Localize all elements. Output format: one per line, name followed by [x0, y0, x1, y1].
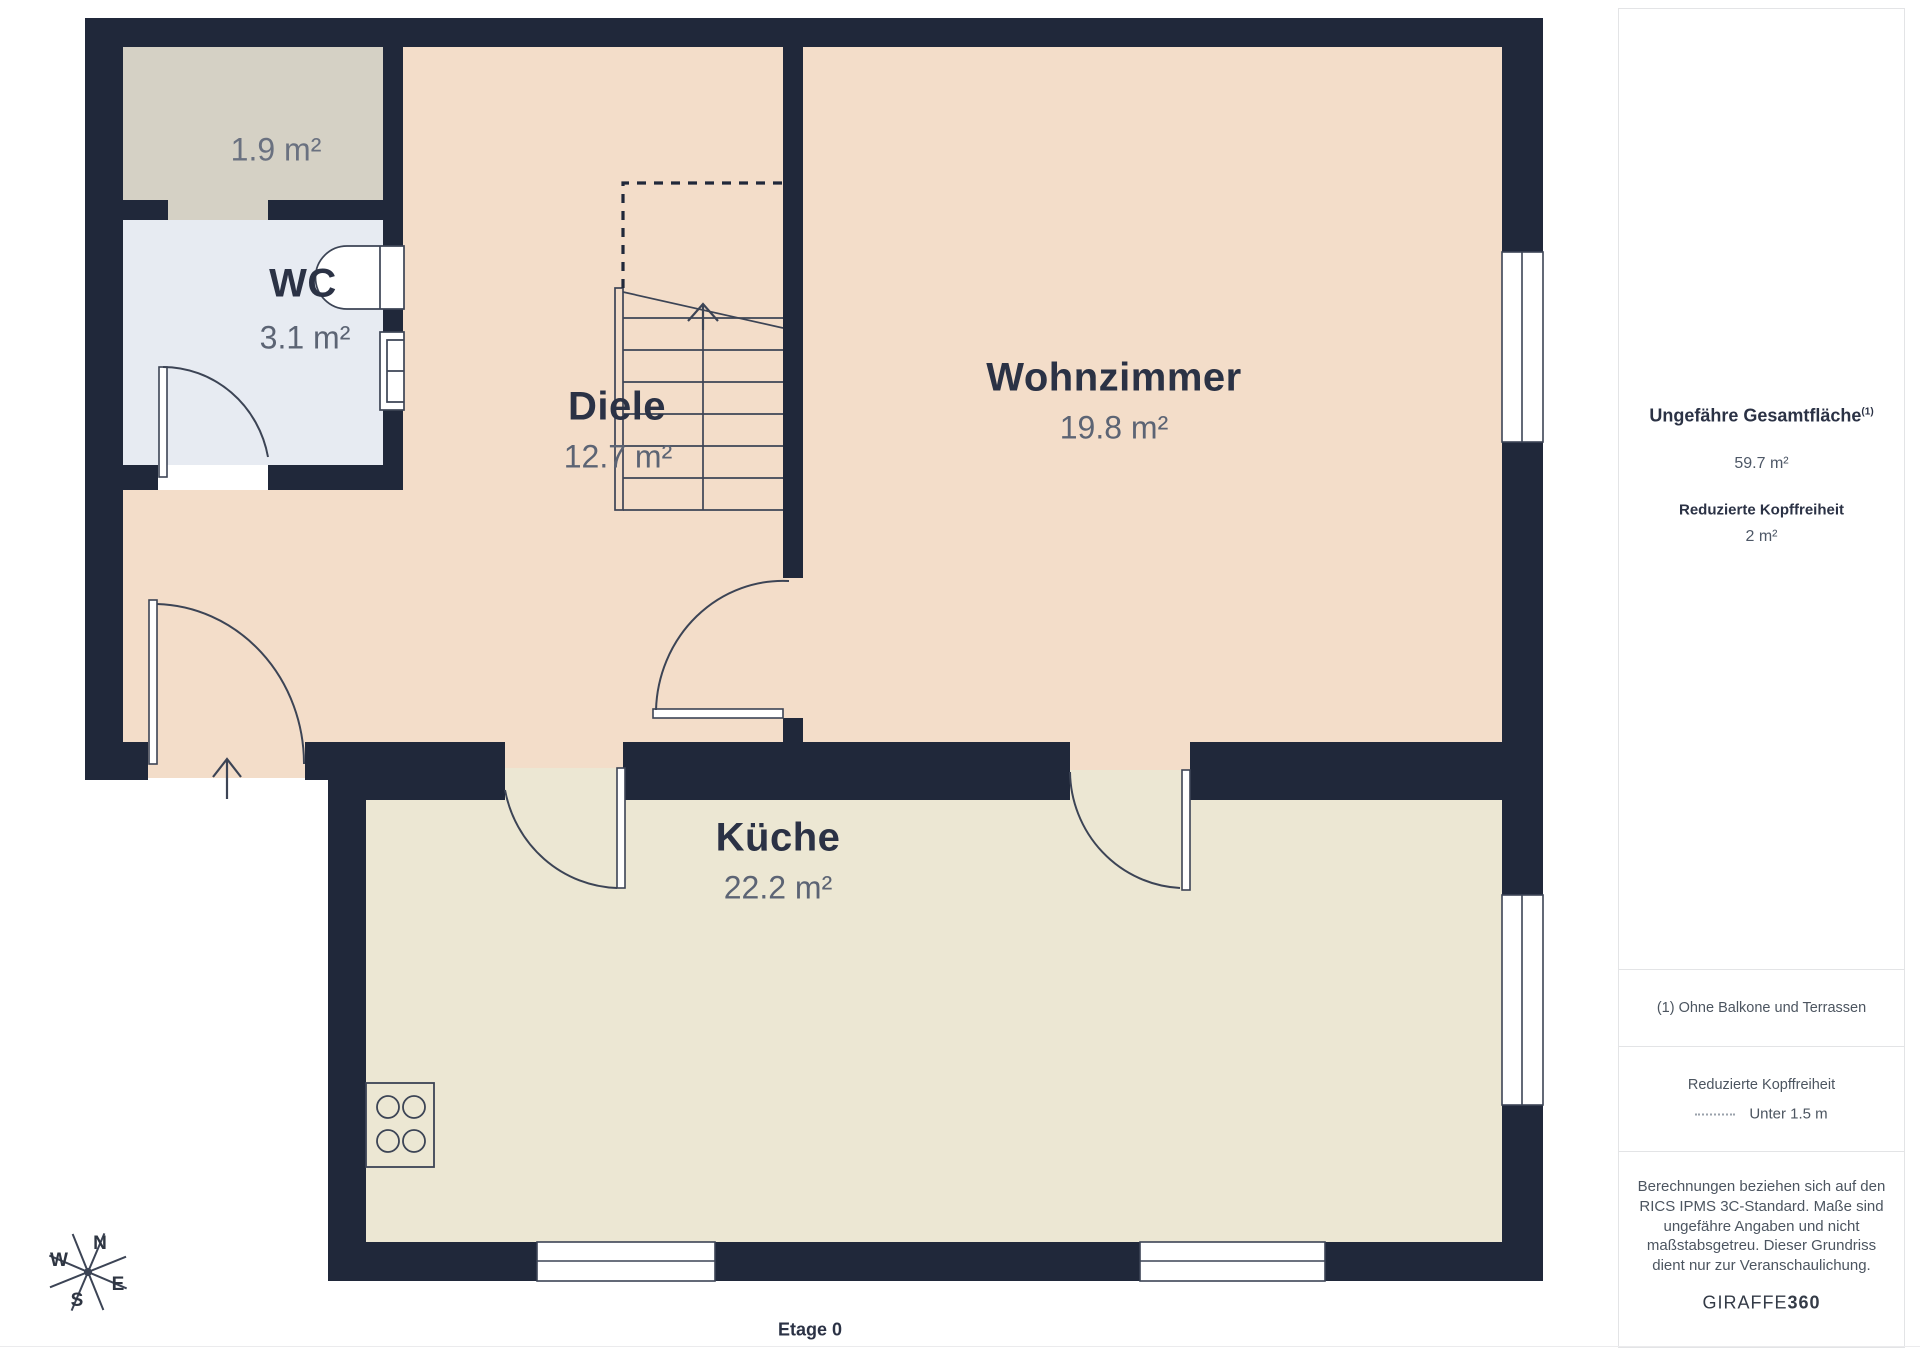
floor-level-label: Etage 0 — [778, 1320, 842, 1341]
entrance-left-jamb — [123, 742, 148, 780]
disclaimer-text: Berechnungen beziehen sich auf den RICS … — [1633, 1177, 1890, 1276]
diele-name-label: Diele — [568, 385, 666, 430]
kueche-name-label: Küche — [716, 816, 841, 861]
wc-diele-wall — [383, 47, 403, 490]
wc-bottom-wall-right — [268, 465, 403, 490]
compass-east-label: E — [112, 1274, 125, 1296]
storage-wall-stub-right — [268, 200, 400, 220]
legend-row: Unter 1.5 m — [1619, 1106, 1904, 1123]
legend-title: Reduzierte Kopffreiheit — [1619, 1077, 1904, 1093]
footnote-text: (1) Ohne Balkone und Terrassen — [1619, 1000, 1904, 1016]
storage-area-label: 1.9 m² — [231, 132, 322, 169]
sidebar-separator-2 — [1619, 1046, 1904, 1047]
total-area-footnote-marker: (1) — [1861, 407, 1873, 418]
kueche-door2-threshold-top — [1070, 742, 1190, 770]
total-area-title-text: Ungefähre Gesamtfläche — [1649, 406, 1861, 426]
compass-north-label: N — [93, 1233, 107, 1255]
kueche-area-label: 22.2 m² — [724, 870, 832, 907]
reduced-headroom-title: Reduzierte Kopffreiheit — [1619, 502, 1904, 519]
middle-wall-segment-a — [328, 742, 505, 800]
legend-value: Unter 1.5 m — [1749, 1106, 1827, 1123]
total-area-title: Ungefähre Gesamtfläche(1) — [1619, 406, 1904, 427]
kueche-left-wall — [328, 780, 366, 1242]
outer-wall-left — [85, 18, 123, 780]
compass-west-label: W — [50, 1250, 68, 1272]
wohnzimmer-name-label: Wohnzimmer — [986, 356, 1241, 401]
page-bottom-divider — [0, 1346, 1920, 1347]
reduced-headroom-value: 2 m² — [1619, 528, 1904, 546]
diele-wohnzimmer-wall — [783, 47, 803, 578]
brand-logo: GIRAFFE360 — [1619, 1293, 1904, 1314]
brand-number-text: 360 — [1787, 1293, 1820, 1313]
compass-south-label: S — [71, 1290, 84, 1312]
wc-name-label: WC — [269, 262, 337, 307]
compass-star-icon — [33, 1217, 143, 1327]
wc-bottom-wall-left — [123, 465, 158, 490]
wc-area-label: 3.1 m² — [260, 320, 351, 357]
outer-wall-bottom — [328, 1242, 1543, 1281]
kueche-door1-threshold-top — [505, 742, 623, 768]
brand-name-text: GIRAFFE — [1702, 1293, 1787, 1313]
sidebar-separator-1 — [1619, 969, 1904, 970]
middle-wall-segment-c — [1190, 742, 1502, 800]
kueche-door1-threshold — [505, 768, 623, 800]
storage-wall-stub-left — [123, 200, 168, 220]
entrance-threshold — [148, 742, 305, 778]
outer-wall-right — [1502, 18, 1543, 1281]
total-area-value: 59.7 m² — [1619, 455, 1904, 473]
sidebar-separator-3 — [1619, 1151, 1904, 1152]
diele-wohnzimmer-wall-stub — [783, 718, 803, 742]
middle-wall-segment-b — [623, 742, 1070, 800]
floorplan-page: 1.9 m² WC 3.1 m² Diele 12.7 m² Wohnzimme… — [0, 0, 1920, 1358]
hall-floor — [123, 490, 403, 742]
diele-area-label: 12.7 m² — [564, 439, 672, 476]
outer-wall-top — [85, 18, 1543, 47]
dotted-line-swatch — [1695, 1113, 1735, 1115]
wohnzimmer-door-opening — [783, 578, 803, 718]
kueche-room-floor — [366, 800, 1502, 1242]
kueche-door2-threshold — [1070, 770, 1190, 800]
wohnzimmer-area-label: 19.8 m² — [1060, 410, 1168, 447]
info-sidebar: Ungefähre Gesamtfläche(1) 59.7 m² Reduzi… — [1618, 8, 1905, 1348]
